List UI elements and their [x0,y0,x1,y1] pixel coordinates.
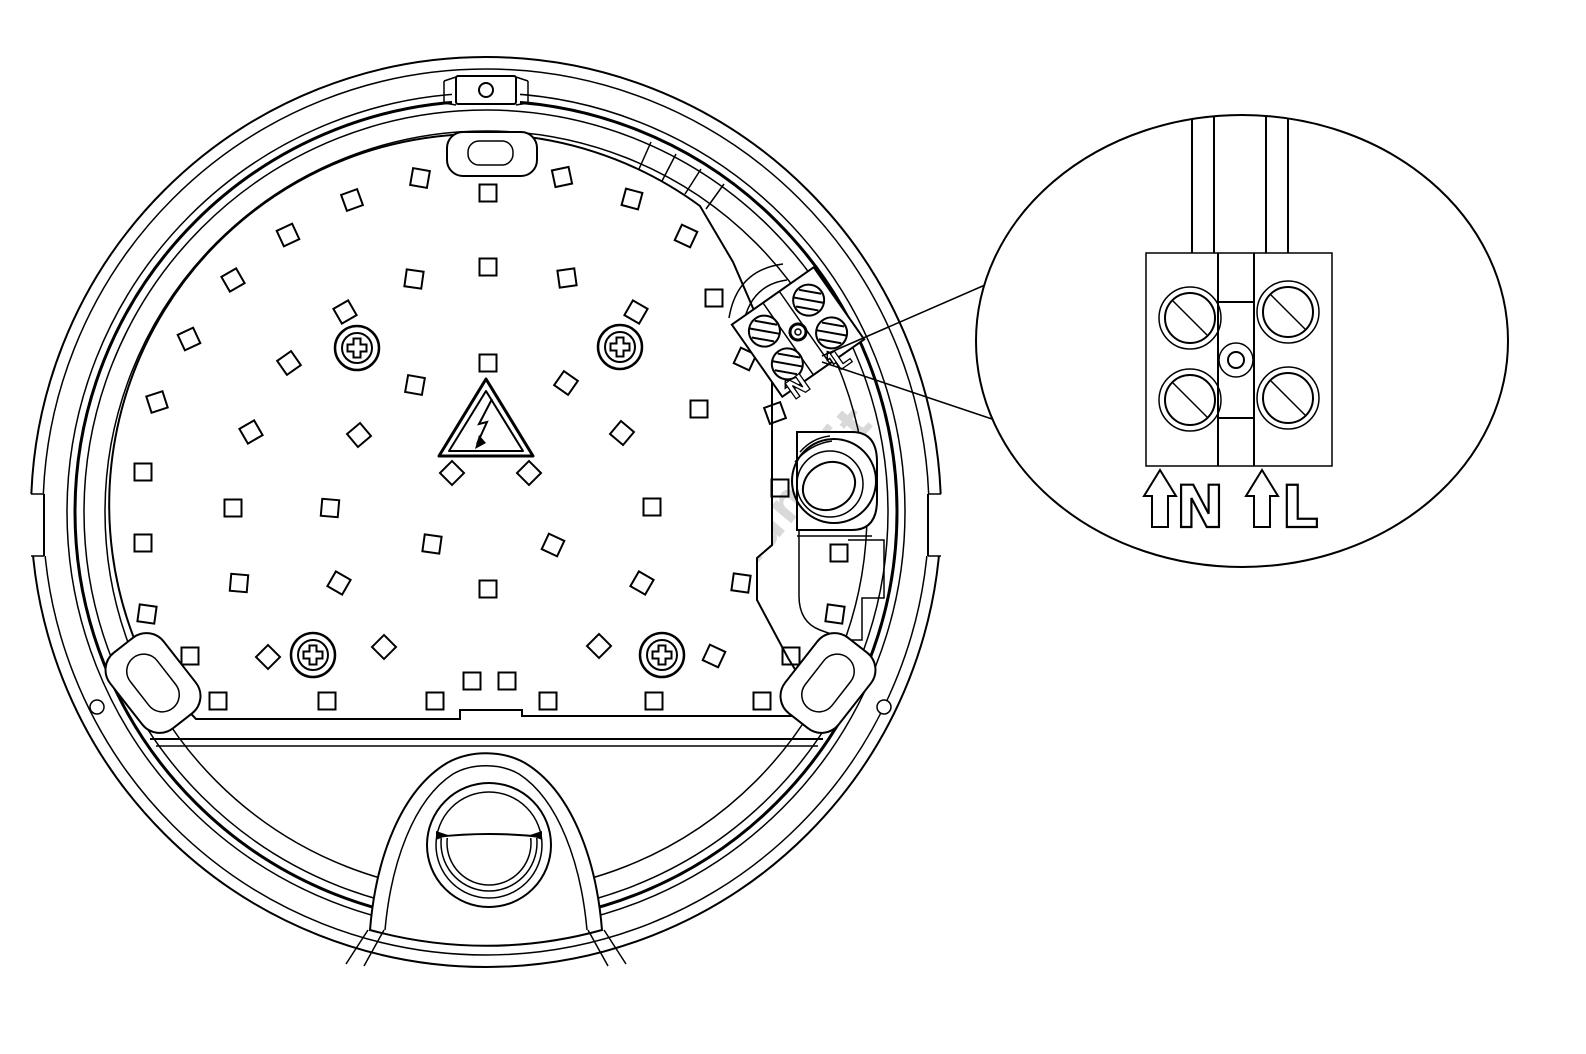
phillips-screw [598,325,642,369]
callout-leader-lines [822,285,995,420]
bottom-wall [150,739,823,746]
led-pad [831,545,848,562]
mount-slot-right [772,624,885,742]
ring-hole-right [877,700,891,714]
led-board-plate [109,134,824,719]
left-notch [26,494,50,556]
phillips-screw [640,633,684,677]
right-notch [922,494,946,556]
technical-drawing-page: luciano.it [0,0,1586,1054]
sensor-dome [346,753,626,966]
top-fixing-tab [444,73,528,107]
ring-hole-left [90,700,104,714]
top-keyhole-slot [447,132,537,176]
phillips-screw [291,633,335,677]
led-pad [825,604,844,623]
phillips-screw [335,326,379,370]
detail-callout: N L [976,115,1508,567]
detail-n-label: N [1176,473,1225,541]
cable-gland [792,432,884,640]
detail-l-label: L [1282,473,1319,541]
luminaire-diagram: luciano.it [0,0,1586,1054]
